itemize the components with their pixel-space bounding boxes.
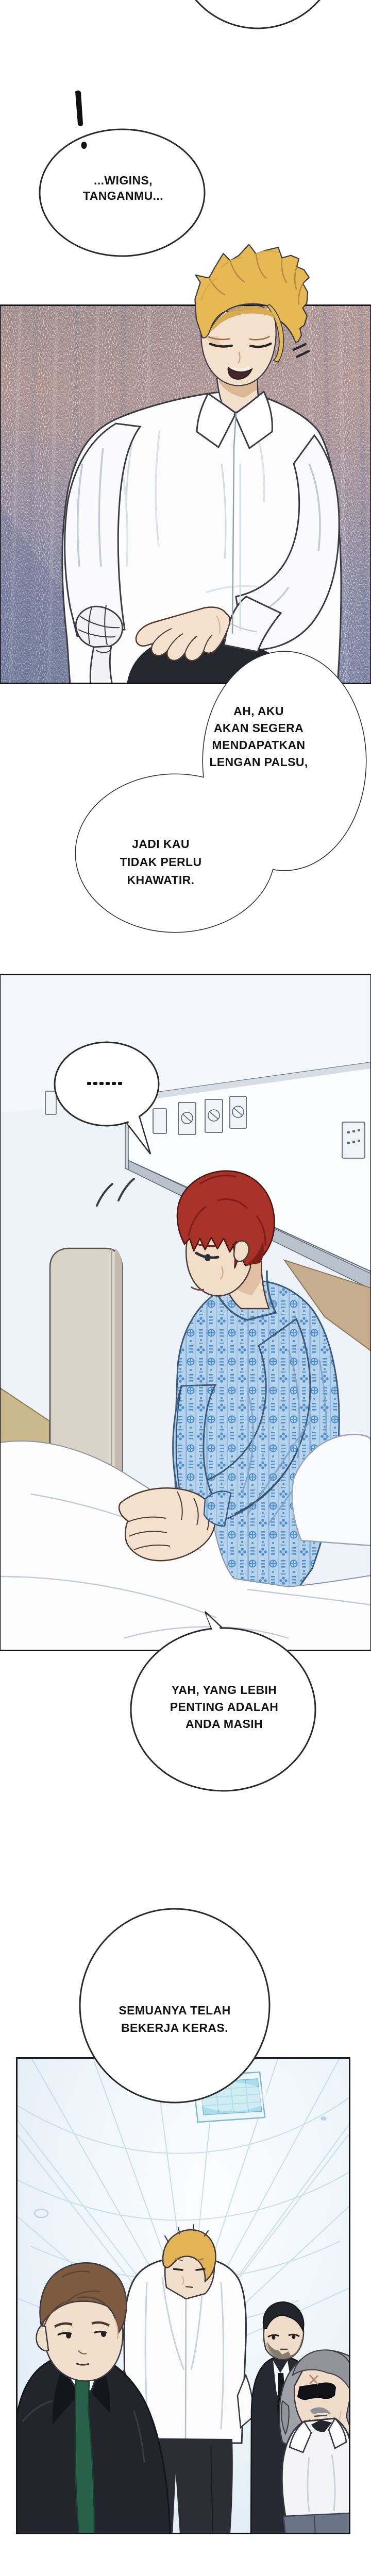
svg-text:AH, AKU: AH, AKU	[233, 704, 284, 718]
svg-text:YAH, YANG LEBIH: YAH, YANG LEBIH	[172, 1683, 277, 1697]
svg-text:LENGAN PALSU,: LENGAN PALSU,	[209, 755, 308, 769]
svg-text:TIDAK PERLU: TIDAK PERLU	[120, 855, 201, 869]
svg-text:PENTING ADALAH: PENTING ADALAH	[170, 1700, 278, 1714]
svg-text:SEMUANYA TELAH: SEMUANYA TELAH	[119, 2004, 230, 2017]
svg-text:AKAN SEGERA: AKAN SEGERA	[214, 721, 303, 735]
svg-text:ANDA MASIH: ANDA MASIH	[185, 1717, 263, 1731]
svg-text:JADI KAU: JADI KAU	[132, 837, 190, 851]
svg-text:KHAWATIR.: KHAWATIR.	[127, 873, 195, 887]
svg-text:TANGANMU...: TANGANMU...	[83, 189, 163, 202]
svg-text:MENDAPATKAN: MENDAPATKAN	[212, 738, 305, 752]
svg-text:BEKERJA KERAS.: BEKERJA KERAS.	[121, 2021, 228, 2035]
svg-text:...WIGINS,: ...WIGINS,	[94, 174, 153, 187]
